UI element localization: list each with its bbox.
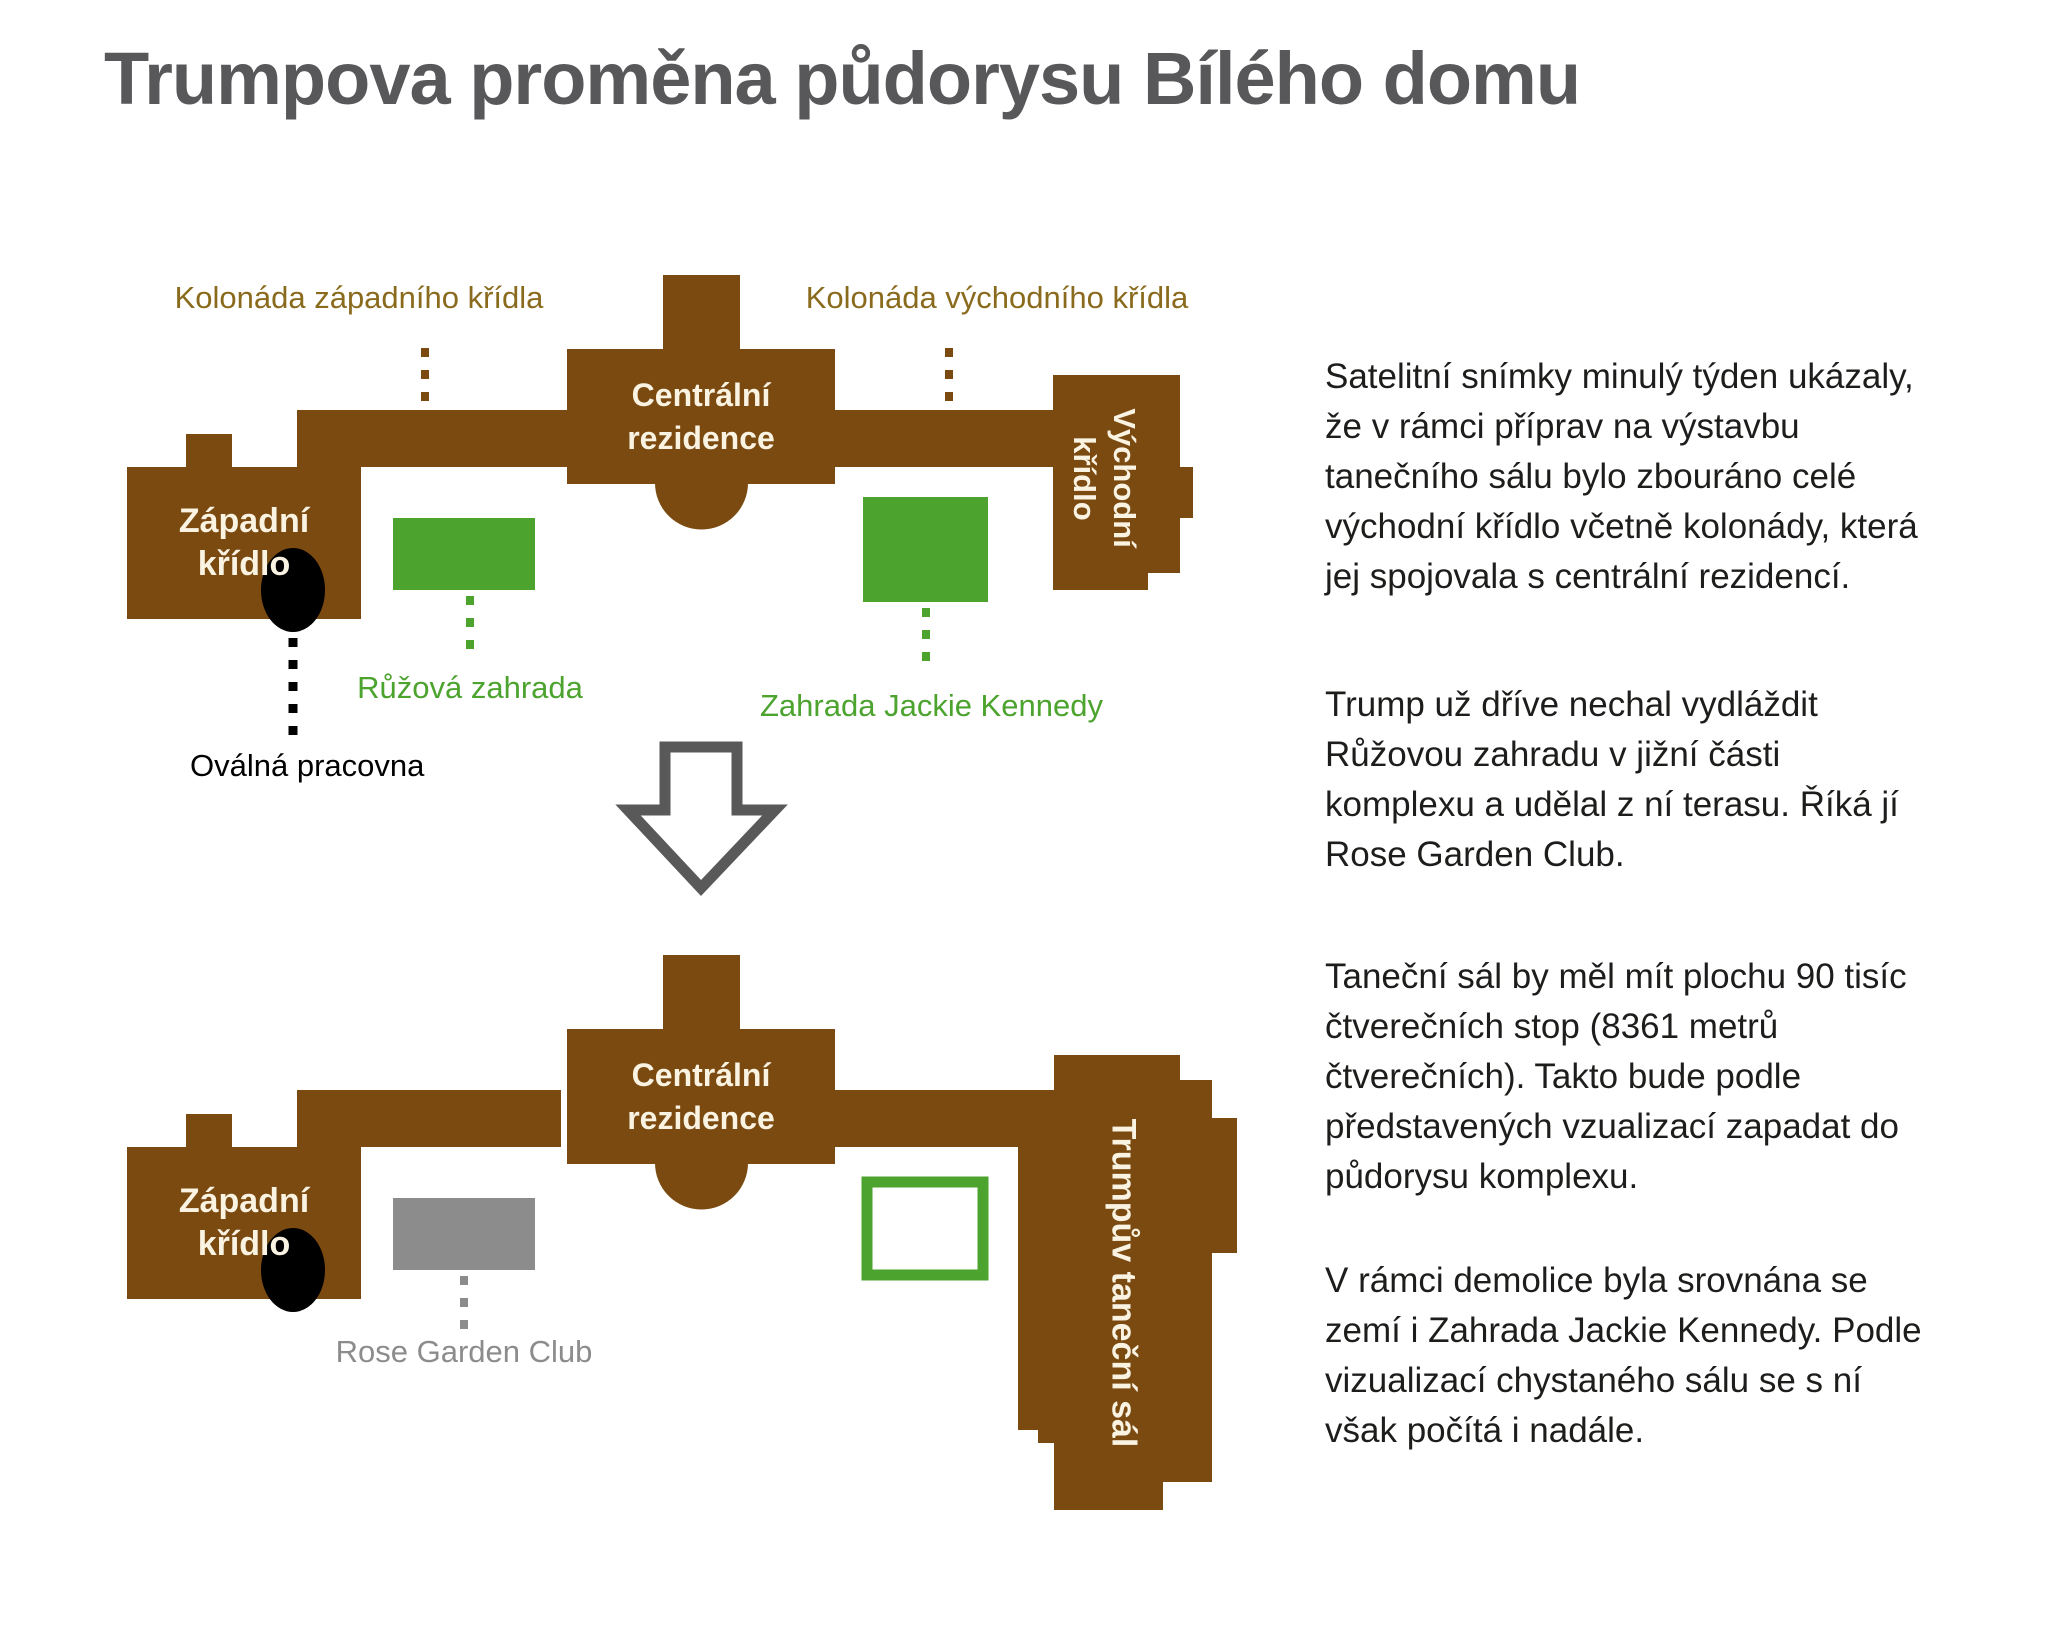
- west-colonnade-shape-after: [297, 1090, 561, 1147]
- article-paragraph-3: Taneční sál by měl mít plochu 90 tisíc č…: [1325, 952, 2025, 1202]
- jackie-kennedy-garden-label: Zahrada Jackie Kennedy: [760, 688, 1084, 724]
- east-colonnade-shape-after: [835, 1090, 1055, 1147]
- west-colonnade-label: Kolonáda západního křídla: [157, 280, 561, 316]
- south-portico-shape-before: [655, 483, 748, 530]
- oval-office-label: Oválná pracovna: [190, 748, 424, 784]
- west-wing-label-before: Západní křídlo: [127, 467, 361, 619]
- article-text: Satelitní snímky minulý týden ukázaly, ž…: [1325, 352, 2025, 1456]
- rose-garden-club-shape: [393, 1198, 535, 1270]
- jackie-kennedy-garden-shape: [863, 497, 988, 602]
- east-colonnade-label: Kolonáda východního křídla: [795, 280, 1199, 316]
- article-paragraph-2: Trump už dříve nechal vydláždit Růžovou …: [1325, 680, 2025, 880]
- article-paragraph-1: Satelitní snímky minulý týden ukázaly, ž…: [1325, 352, 2025, 602]
- south-portico-shape-after: [655, 1163, 748, 1210]
- east-wing-label: Východní křídlo: [1064, 408, 1144, 548]
- west-colonnade-shape-before: [297, 410, 567, 467]
- north-portico-shape-before: [663, 275, 740, 349]
- west-wing-label-after: Západní křídlo: [127, 1147, 361, 1299]
- rose-garden-label: Růžová zahrada: [350, 670, 590, 706]
- article-paragraph-4: V rámci demolice byla srovnána se zemí i…: [1325, 1256, 2025, 1456]
- north-portico-shape-after: [663, 955, 740, 1029]
- rose-garden-shape: [393, 518, 535, 590]
- east-colonnade-shape-before: [835, 410, 1053, 467]
- rose-garden-club-label: Rose Garden Club: [332, 1334, 596, 1370]
- central-residence-label-after: Centrální rezidence: [567, 1029, 835, 1164]
- down-arrow-icon: [628, 747, 775, 888]
- central-residence-label-before: Centrální rezidence: [567, 349, 835, 484]
- jackie-kennedy-garden-outline-shape: [867, 1182, 983, 1275]
- ballroom-label: Trumpův taneční sál: [1104, 1119, 1143, 1448]
